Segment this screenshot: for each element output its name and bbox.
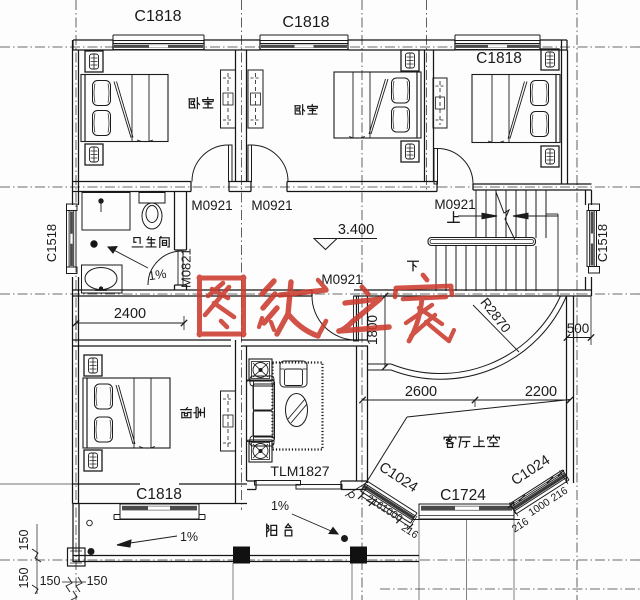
- svg-text:1%: 1%: [148, 267, 168, 283]
- svg-text:216: 216: [549, 485, 570, 505]
- svg-text:150: 150: [17, 530, 31, 551]
- svg-text:150: 150: [17, 568, 31, 589]
- svg-text:M0921: M0921: [321, 272, 362, 287]
- svg-text:150: 150: [87, 574, 108, 588]
- svg-text:C1818: C1818: [136, 486, 182, 503]
- svg-text:2600: 2600: [405, 384, 437, 400]
- svg-text:2200: 2200: [525, 384, 557, 400]
- svg-text:C1818: C1818: [134, 8, 181, 25]
- svg-text:216: 216: [399, 522, 420, 542]
- svg-text:C1818: C1818: [282, 14, 329, 31]
- svg-text:M0921: M0921: [434, 197, 475, 212]
- svg-text:C1518: C1518: [44, 224, 59, 262]
- svg-text:500: 500: [567, 321, 590, 336]
- svg-text:M0921: M0921: [251, 198, 292, 213]
- svg-text:3.400: 3.400: [338, 222, 374, 238]
- svg-text:M0921: M0921: [191, 198, 232, 213]
- svg-text:150: 150: [40, 574, 61, 588]
- svg-text:C1724: C1724: [440, 487, 486, 504]
- svg-text:1%: 1%: [180, 530, 198, 544]
- svg-text:1%: 1%: [271, 499, 289, 513]
- svg-text:C1818: C1818: [476, 50, 522, 67]
- svg-text:C1024: C1024: [509, 452, 554, 489]
- svg-text:2400: 2400: [114, 306, 146, 322]
- svg-text:M0821: M0821: [179, 248, 194, 288]
- svg-text:TLM1827: TLM1827: [270, 463, 329, 479]
- svg-text:C1518: C1518: [595, 224, 610, 262]
